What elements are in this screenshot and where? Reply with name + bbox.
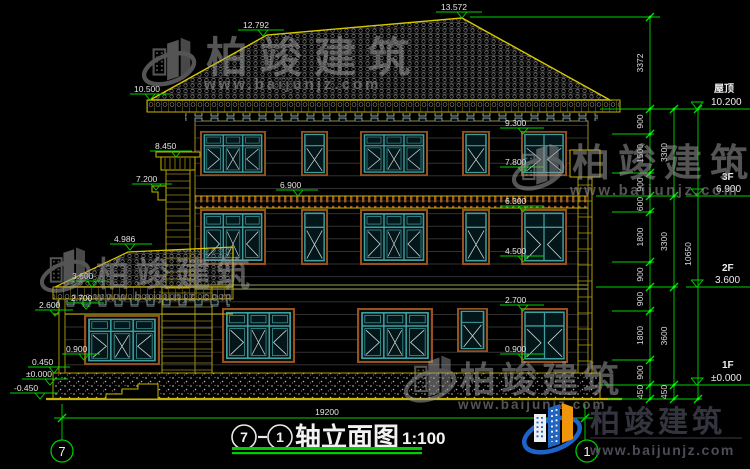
window-1f-1: [223, 309, 294, 362]
overall-width-label: 19200: [315, 407, 339, 417]
svg-text:7: 7: [58, 444, 65, 459]
eave-dentils: [185, 113, 598, 121]
dim-label: 3300: [659, 232, 669, 251]
svg-text:www.baijunjz.com: www.baijunjz.com: [569, 182, 739, 199]
svg-text:3.600: 3.600: [715, 275, 740, 286]
svg-text:4.986: 4.986: [114, 234, 136, 244]
eave-band: [147, 100, 620, 112]
dim-label: 450: [635, 385, 645, 399]
svg-text:柏竣建筑: 柏竣建筑: [572, 143, 750, 185]
brand-logo-text: 柏竣建筑: [590, 405, 726, 439]
svg-text:屋顶: 屋顶: [714, 83, 734, 95]
porch-window: [85, 316, 159, 364]
svg-text:±0.000: ±0.000: [26, 369, 52, 379]
dim-label: 10650: [683, 242, 693, 266]
window-3f-4: [463, 132, 489, 175]
level-marker-2f: 2F 3.600: [686, 263, 750, 287]
svg-text:2.700: 2.700: [71, 293, 93, 303]
window-3f-3: [361, 132, 427, 175]
window-3f-1: [201, 132, 265, 175]
dim-label: 3372: [635, 53, 645, 72]
level-marker-roof: 屋顶 10.200: [686, 83, 750, 109]
svg-text:柏竣建筑: 柏竣建筑: [460, 359, 624, 400]
level-marker-porch-ridge: 4.986: [110, 234, 152, 250]
svg-text:柏竣建筑: 柏竣建筑: [96, 255, 256, 294]
svg-text:www.baijunjz.com: www.baijunjz.com: [93, 290, 234, 304]
window-3f-2: [302, 132, 327, 175]
cad-elevation-canvas: 3372 900 1500 900 600 1800 900 900 1800 …: [0, 0, 750, 469]
svg-text:www.baijunjz.com: www.baijunjz.com: [457, 397, 607, 412]
dim-label: 450: [659, 385, 669, 399]
dim-label: 900: [635, 365, 645, 379]
window-2f-2: [302, 210, 327, 264]
svg-text:2.700: 2.700: [505, 295, 527, 305]
svg-text:10.200: 10.200: [711, 97, 742, 108]
svg-text:柏竣建筑: 柏竣建筑: [206, 34, 422, 81]
title-block: 7 1 轴立面图 1:100: [232, 422, 445, 454]
level-marker-apex: 13.572: [436, 2, 482, 18]
svg-text:6.300: 6.300: [505, 196, 527, 206]
brand-logo-url: www.baijunjz.com: [589, 442, 735, 458]
dim-label: 900: [635, 267, 645, 281]
watermark-bottom: 柏竣建筑 www.baijunjz.com: [402, 356, 624, 412]
svg-text:1F: 1F: [722, 360, 734, 371]
svg-text:1: 1: [276, 429, 284, 445]
level-marker-ground: -0.450: [10, 383, 58, 399]
dim-label: 1800: [635, 227, 645, 246]
floor-level-markers: 屋顶 10.200 3F 6.900 2F 3.600 1F ±0.000: [686, 83, 750, 385]
svg-text:7: 7: [240, 429, 248, 445]
window-2f-4: [463, 210, 489, 264]
dim-label: 1800: [635, 326, 645, 345]
window-2f-3: [361, 210, 427, 264]
dim-label: 900: [635, 114, 645, 128]
svg-text:2.600: 2.600: [39, 300, 61, 310]
svg-text:6.900: 6.900: [280, 180, 302, 190]
brand-logo: 柏竣建筑 www.baijunjz.com: [520, 403, 742, 459]
svg-text:13.572: 13.572: [441, 2, 467, 12]
title-underline-2: [232, 452, 422, 454]
svg-text:8.450: 8.450: [155, 141, 177, 151]
dim-label: 900: [635, 292, 645, 306]
svg-text:4.500: 4.500: [505, 246, 527, 256]
svg-text:7.200: 7.200: [136, 174, 158, 184]
svg-text:±0.000: ±0.000: [711, 373, 742, 384]
drawing-scale: 1:100: [402, 429, 445, 448]
title-underline-1: [232, 447, 422, 450]
svg-text:-0.450: -0.450: [14, 383, 38, 393]
svg-text:9.300: 9.300: [505, 118, 527, 128]
svg-text:12.792: 12.792: [243, 20, 269, 30]
axis-circle-7: 7: [51, 440, 73, 462]
dim-label: 3600: [659, 326, 669, 345]
svg-text:2F: 2F: [722, 263, 734, 274]
svg-text:0.450: 0.450: [32, 357, 54, 367]
svg-text:0.900: 0.900: [66, 344, 88, 354]
window-1f-3: [458, 309, 487, 351]
svg-text:0.900: 0.900: [505, 344, 527, 354]
window-1f-2: [358, 309, 432, 362]
level-marker-1f: 1F ±0.000: [686, 360, 750, 385]
svg-text:www.baijunjz.com: www.baijunjz.com: [203, 76, 381, 93]
elevation-drawing: 3372 900 1500 900 600 1800 900 900 1800 …: [0, 0, 750, 469]
